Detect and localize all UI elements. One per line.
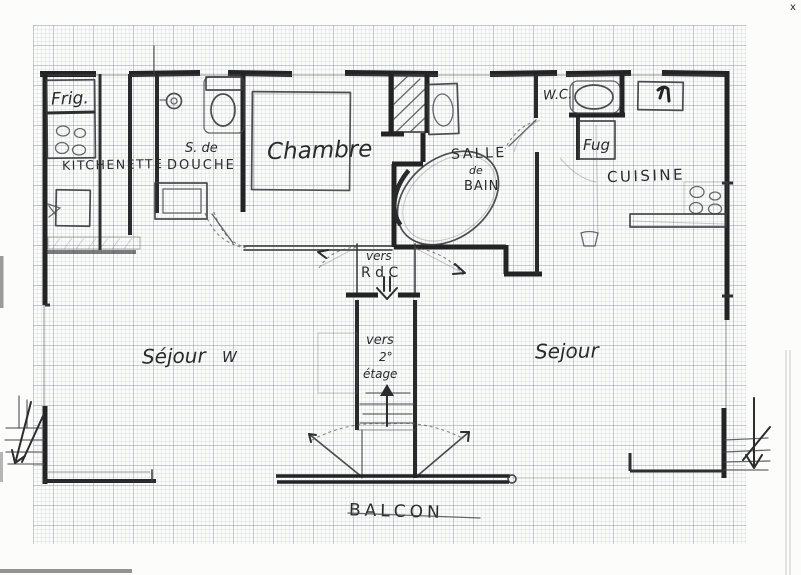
door-leaf (309, 434, 362, 477)
label-vers-etage-2: 2° (379, 350, 393, 364)
door-swing-arc (205, 213, 246, 248)
label-living-left-w: W (222, 348, 238, 366)
washbasin-icon (155, 183, 207, 219)
page-corner-mark: x (790, 2, 796, 13)
label-bath-2: de (469, 164, 483, 177)
balcony-door (276, 423, 516, 483)
label-fug: Fug (583, 136, 610, 154)
stair-shaft (318, 300, 416, 478)
bathroom-washbasin-icon (427, 83, 459, 134)
exterior-stairs-right (724, 398, 770, 470)
burner-icon (57, 126, 70, 136)
closet-outline (318, 333, 357, 393)
counter-hatch (45, 237, 140, 252)
label-fridge: Frig. (51, 88, 89, 109)
label-vers-rdc-1: vers (366, 249, 392, 263)
door-swing-arc (214, 212, 245, 247)
burner-icon (56, 143, 69, 154)
shower-head-icon (160, 94, 182, 109)
bathroom (376, 74, 542, 274)
floor-plan-page: Frig. KITCHENETTE S. de DOUCHE Chambre S… (0, 0, 801, 575)
stove-burners-icon (684, 182, 727, 214)
kitchen-counter (630, 214, 726, 227)
label-living-right: Sejour (535, 338, 601, 363)
label-vers-etage-1: vers (366, 333, 394, 348)
label-shower-1: S. de (185, 141, 218, 156)
faucet-icon (48, 204, 60, 217)
balcony-threshold (276, 475, 516, 483)
label-kitchenette: KITCHENETTE (62, 156, 164, 173)
toilet-icon (204, 77, 244, 133)
arrow-up-icon (380, 384, 394, 426)
faucet-icon (658, 87, 669, 101)
door-leaf (509, 120, 536, 146)
label-vers-etage-3: étage (363, 367, 397, 381)
small-object-icon (581, 232, 598, 247)
label-balcony: BALCON (349, 500, 444, 522)
door-leaf (416, 432, 469, 477)
label-bath-1: SALLE (451, 145, 507, 163)
arrow-down-icon (743, 398, 770, 468)
burner-icon (75, 129, 86, 138)
label-vers-rdc-2: R d C (361, 265, 399, 281)
burner-icon (73, 145, 86, 155)
floor-plan-drawing: Frig. KITCHENETTE S. de DOUCHE Chambre S… (0, 0, 801, 575)
label-bath-3: BAIN (464, 179, 499, 194)
arrow-upleft-icon (318, 250, 328, 258)
exterior-stairs-left (5, 396, 44, 464)
room-labels: Frig. KITCHENETTE S. de DOUCHE Chambre S… (51, 2, 796, 523)
kitchen-sink-icon (638, 82, 683, 111)
toilet-icon (570, 81, 620, 113)
label-wc: W.C. (543, 87, 573, 104)
label-bedroom: Chambre (267, 136, 373, 165)
scan-edge-artifacts (0, 256, 790, 575)
duct-hatch (381, 74, 427, 134)
label-living-left: Séjour (142, 343, 208, 368)
label-kitchen: CUISINE (607, 165, 686, 186)
label-shower-2: DOUCHE (167, 158, 236, 173)
